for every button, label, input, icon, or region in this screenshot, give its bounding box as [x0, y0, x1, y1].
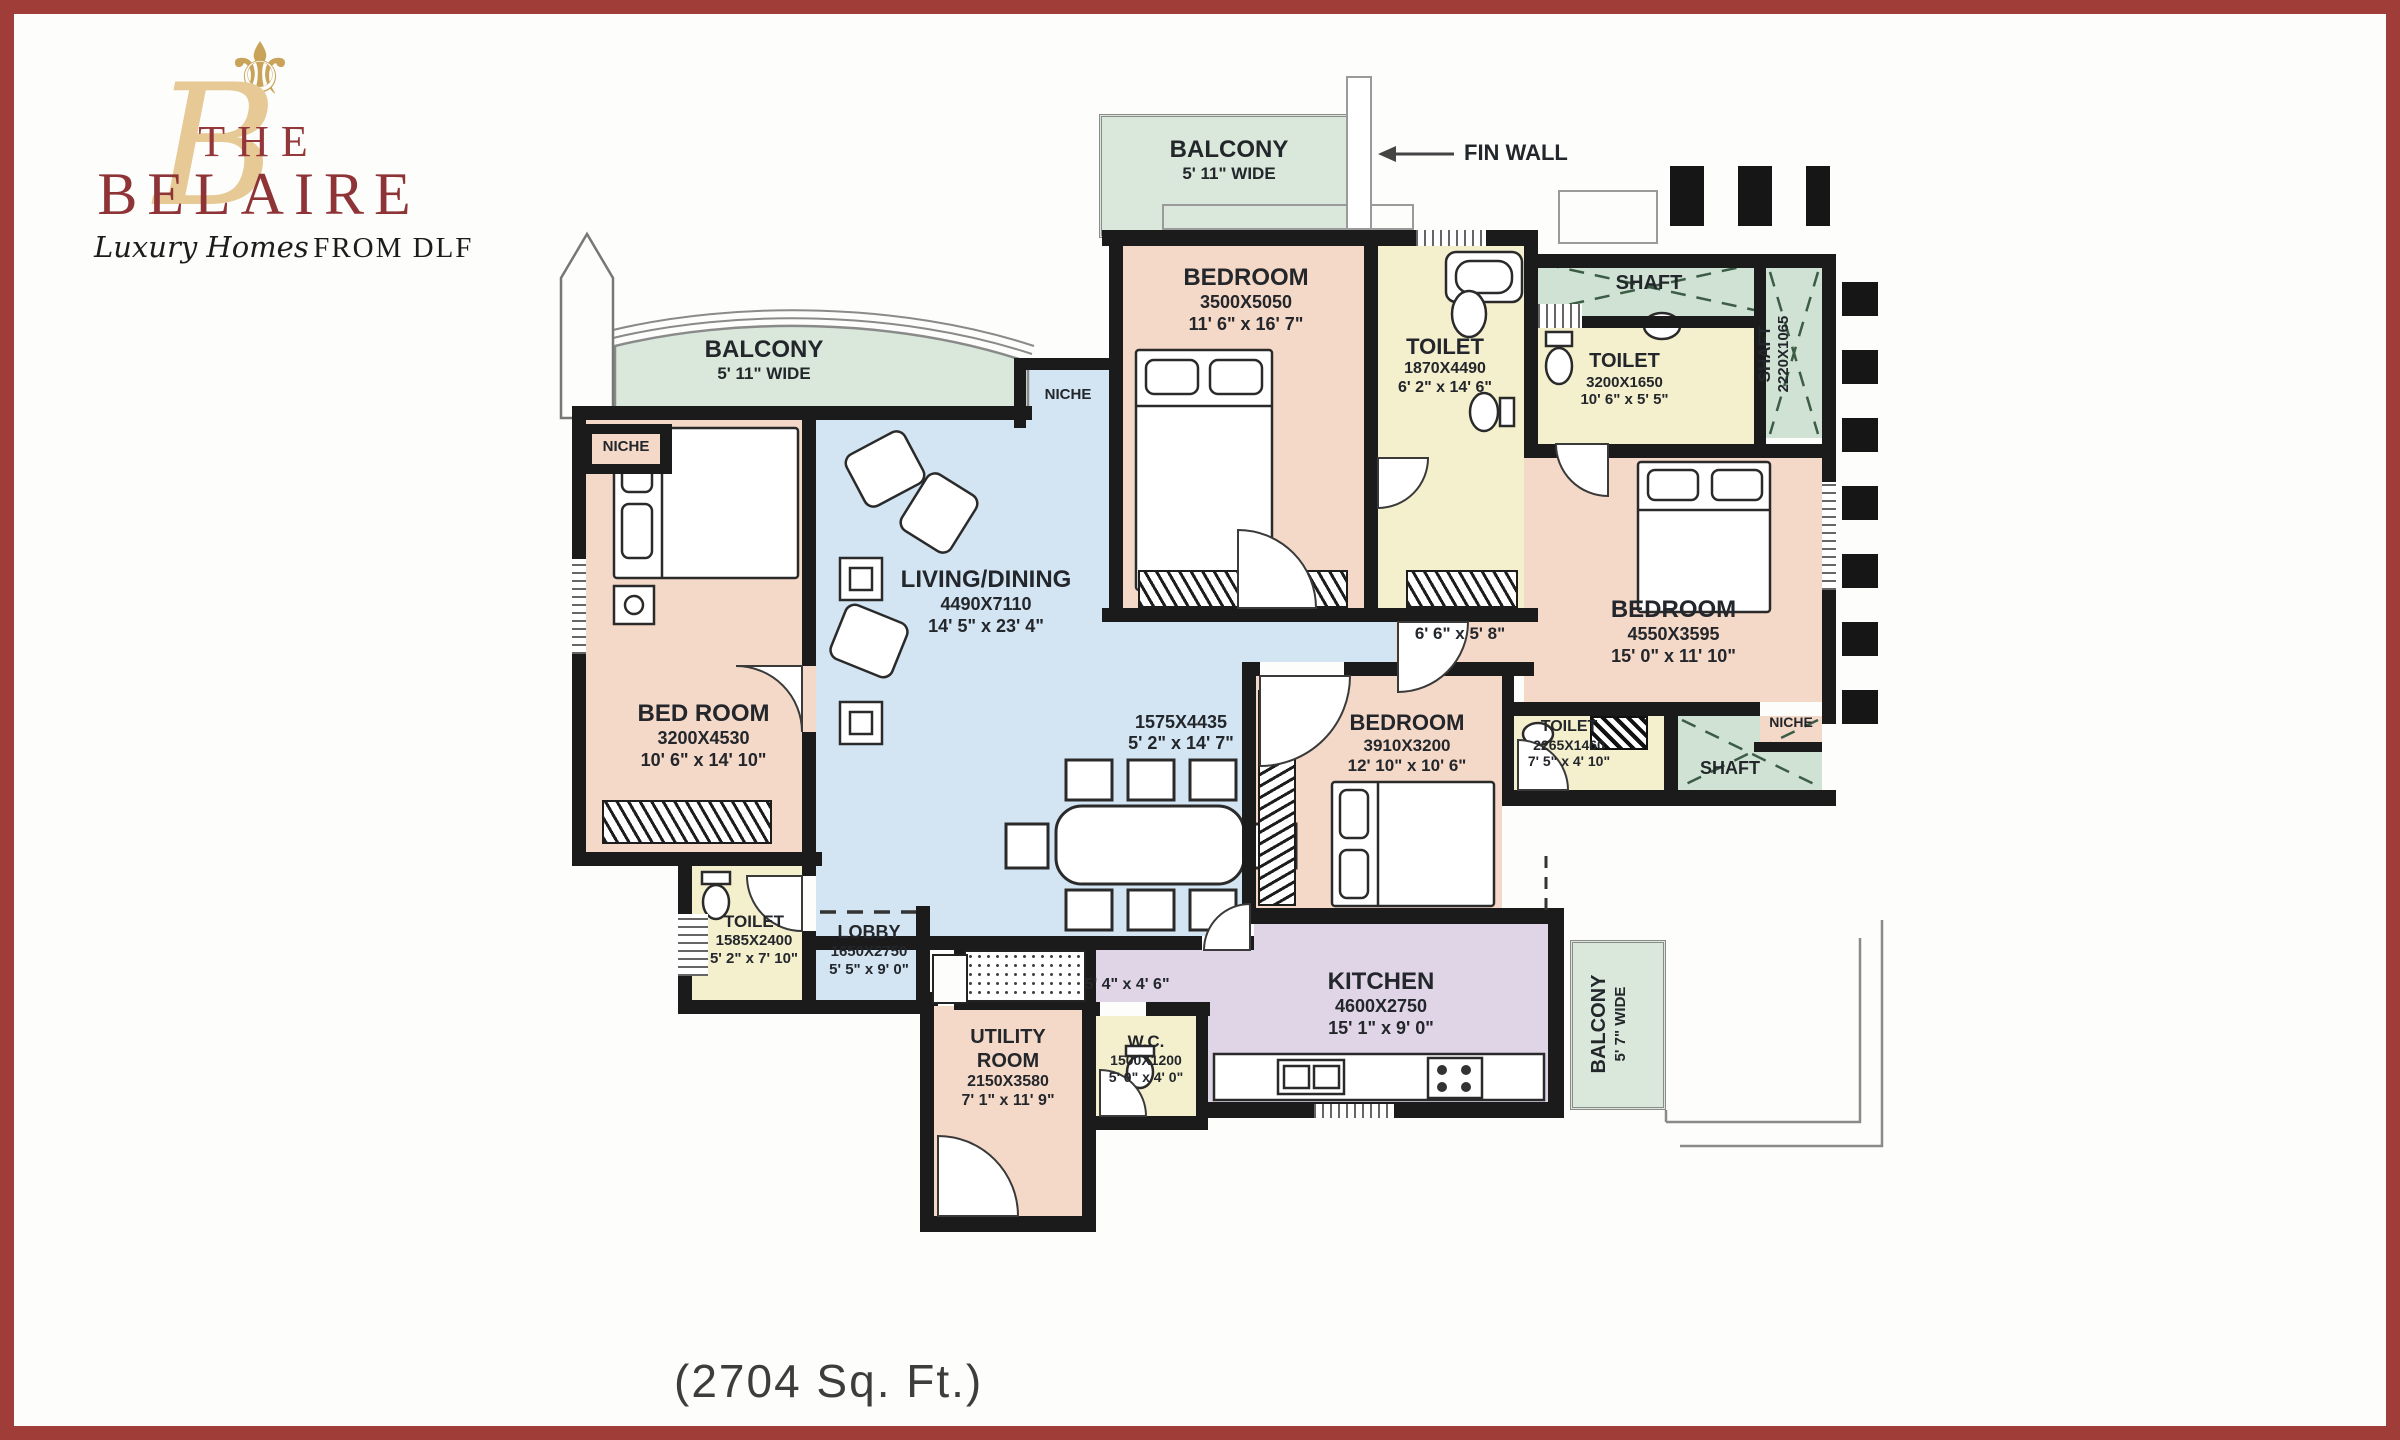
label-wc: W.C. 1500X1200 5' 0" x 4' 0" [1098, 1032, 1194, 1085]
label-fin-wall: FIN WALL [1464, 140, 1664, 166]
door-arcs [736, 444, 1608, 1216]
fin-wall-arrow [1378, 146, 1454, 162]
label-toilet-mid: TOILET 2265X1460 7' 5" x 4' 10" [1510, 718, 1628, 770]
label-kitchen: KITCHEN 4600X2750 15' 1" x 9' 0" [1266, 968, 1496, 1039]
label-passage-54: 5' 4" x 4' 6" [1062, 976, 1192, 995]
label-utility: UTILITY ROOM 2150X3580 7' 1" x 11' 9" [934, 1026, 1082, 1111]
label-toilet-top: TOILET 1870X4490 6' 2" x 14' 6" [1370, 334, 1520, 398]
label-niche-center: NICHE [1028, 386, 1108, 404]
label-balcony-left: BALCONY 5' 11" WIDE [664, 336, 864, 384]
label-shaft-top: SHAFT [1574, 272, 1724, 296]
label-balcony-top: BALCONY 5' 11" WIDE [1119, 136, 1339, 184]
label-passage-66: 6' 6" x 5' 8" [1400, 624, 1520, 644]
floor-plan-canvas: ⚜ B THE BELAIRE Luxury Homes FROM DLF [0, 0, 2400, 1440]
label-bedroom-right: BEDROOM 4550X3595 15' 0" x 11' 10" [1566, 596, 1781, 667]
label-toilet-2: TOILET 3200X1650 10' 6" x 5' 5" [1542, 350, 1707, 409]
label-shaft-right: SHAFT 2220X1065 [1755, 279, 1835, 429]
label-bedroom-mid: BEDROOM 3910X3200 12' 10" x 10' 6" [1312, 710, 1502, 776]
label-toilet-bl: TOILET 1585X2400 5' 2" x 7' 10" [694, 912, 814, 967]
label-niche-left: NICHE [592, 438, 660, 456]
label-bedroom-left: BED ROOM 3200X4530 10' 6" x 14' 10" [606, 700, 801, 771]
exterior-steps [1666, 920, 1882, 1146]
label-living: LIVING/DINING 4490X7110 14' 5" x 23' 4" [866, 566, 1106, 637]
label-passage-1575: 1575X4435 5' 2" x 14' 7" [1106, 712, 1256, 754]
label-shaft-mid: SHAFT [1680, 758, 1780, 779]
total-area-label: (2704 Sq. Ft.) [674, 1354, 983, 1408]
label-lobby: LOBBY 1650X2750 5' 5" x 9' 0" [816, 922, 922, 979]
label-bedroom-top: BEDROOM 3500X5050 11' 6" x 16' 7" [1136, 264, 1356, 335]
label-balcony-right: BALCONY 5' 7" WIDE [1588, 944, 1648, 1104]
label-niche-right: NICHE [1760, 714, 1822, 731]
